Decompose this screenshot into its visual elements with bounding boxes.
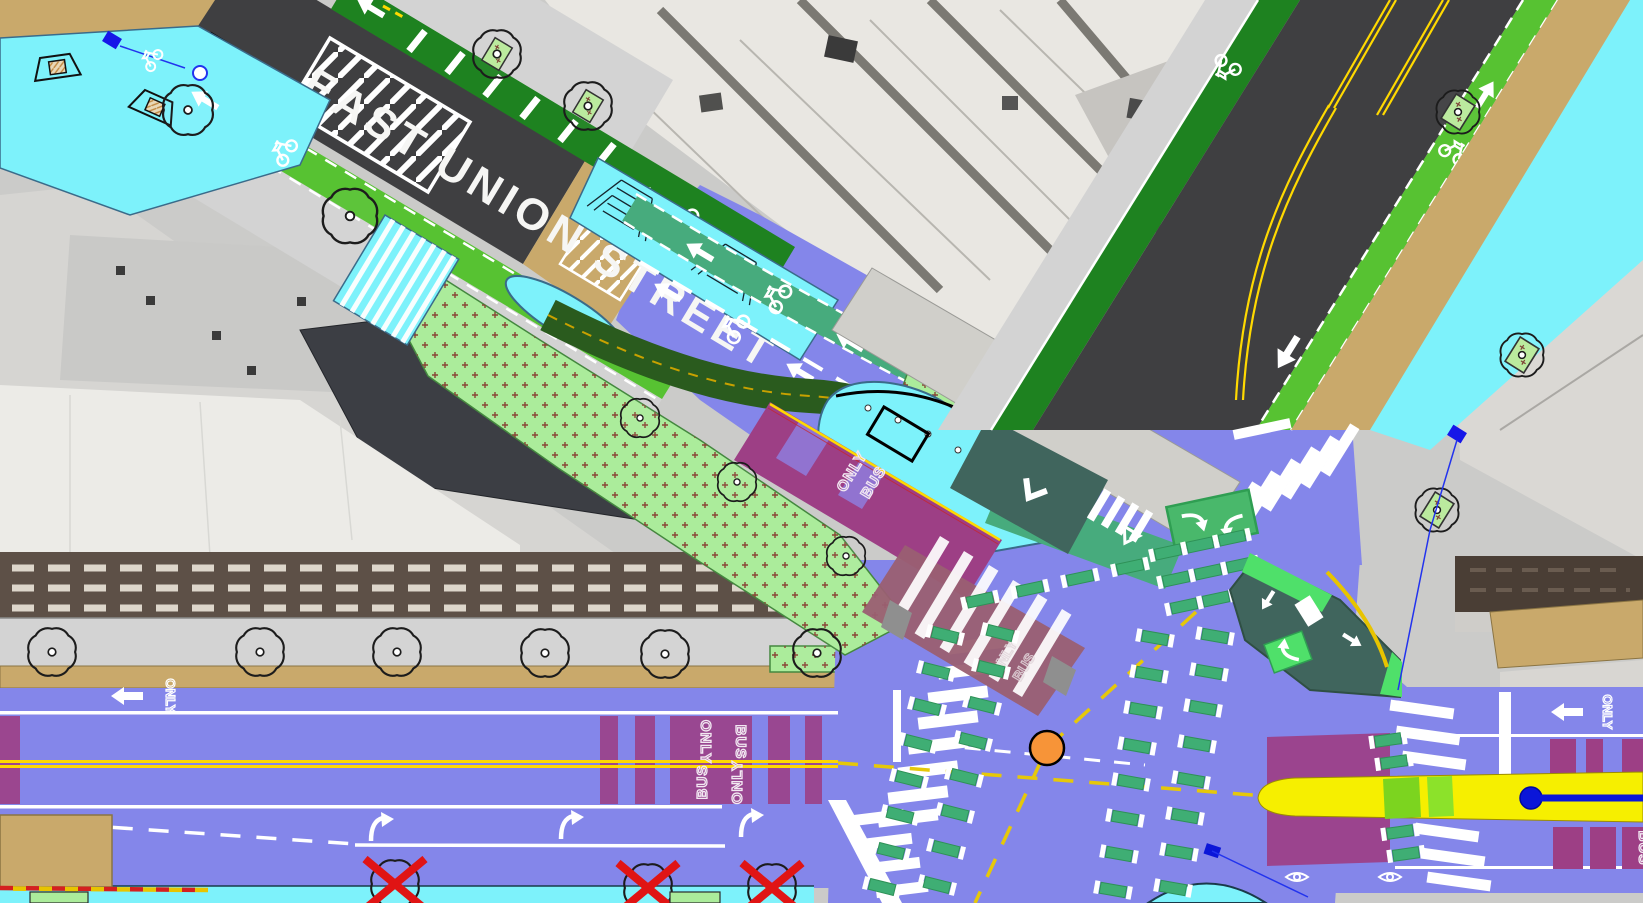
lane-line	[355, 845, 725, 846]
tree-icon	[473, 30, 521, 78]
only-pavement-label: ONLY	[729, 760, 746, 804]
madison-east-tan-strip	[1490, 600, 1643, 668]
bush-icon	[621, 399, 659, 437]
lane-line	[0, 805, 722, 809]
concept-plan-map: ONLY BUS BUS ONLY ONLY	[0, 0, 1643, 903]
bus-pavement-label: BUS	[694, 765, 711, 800]
yellow-highlight-band	[1258, 772, 1643, 822]
bush-icon	[827, 537, 865, 575]
lane-line	[1390, 734, 1643, 737]
tree-icon	[564, 82, 612, 130]
tree-icon	[521, 629, 569, 677]
tree-icon	[641, 630, 689, 678]
only-pavement-label: ONLY	[163, 679, 178, 714]
stop-bar	[893, 690, 901, 762]
madison-north-planting-strip	[0, 666, 862, 688]
tree-icon	[1436, 90, 1479, 133]
centerline-yellow	[0, 765, 838, 768]
blue-line	[1541, 795, 1643, 802]
tree-icon	[28, 628, 76, 676]
tree-icon	[1500, 333, 1543, 376]
tree-icon	[323, 189, 377, 243]
blue-marker-dot	[1520, 787, 1542, 809]
bus-pavement-label: BUS	[732, 725, 749, 760]
lane-line	[0, 711, 838, 715]
tree-icon	[373, 628, 421, 676]
tree-icon	[163, 85, 213, 135]
tree-icon	[793, 629, 841, 677]
parking-pocket	[0, 815, 112, 887]
intersection-signal-dot	[1030, 731, 1064, 765]
madison-north-sidewalk	[0, 618, 862, 668]
only-pavement-label: ONLY	[697, 720, 714, 764]
bush-icon	[718, 463, 756, 501]
street-design-plan-canvas[interactable]: ONLY BUS BUS ONLY ONLY	[0, 0, 1643, 903]
only-pavement-label: ONLY	[1600, 695, 1615, 730]
bike-signal-dot	[193, 66, 207, 80]
tree-icon	[1415, 488, 1458, 531]
tree-icon	[236, 628, 284, 676]
bus-pavement-label: BUS	[1635, 831, 1643, 866]
